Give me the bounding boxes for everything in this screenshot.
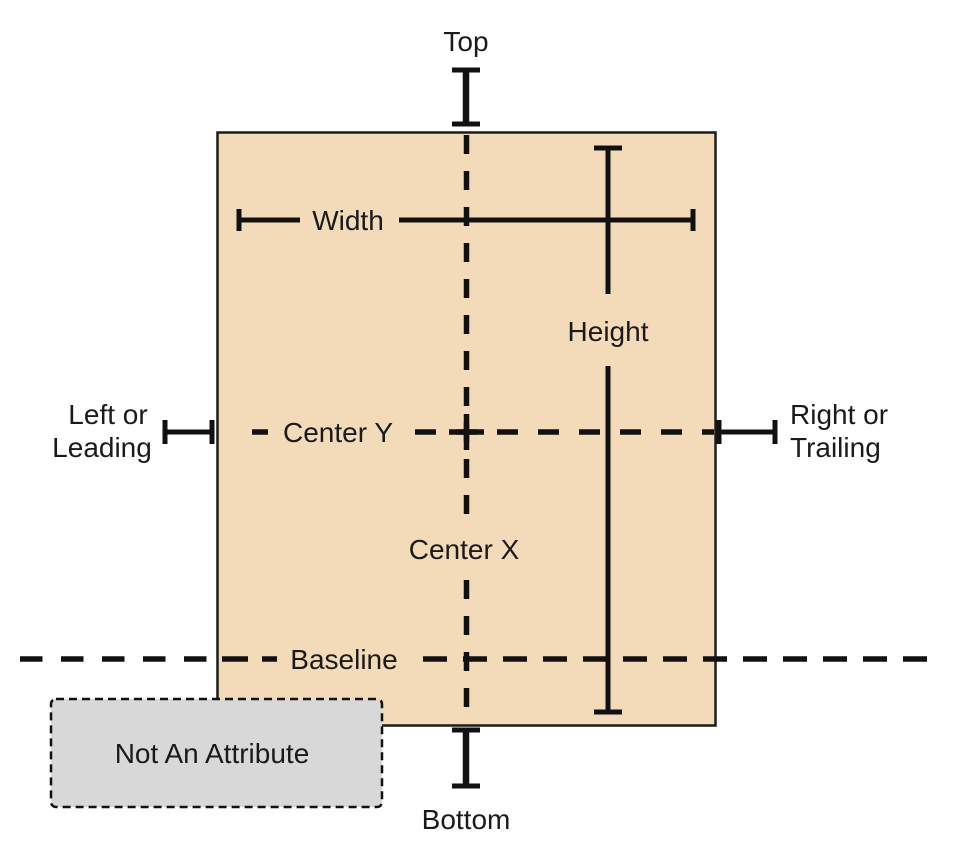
bottom-label: Bottom xyxy=(422,804,511,835)
left-leading-label-line1: Left or xyxy=(68,399,147,430)
not-an-attribute-label: Not An Attribute xyxy=(115,738,310,769)
width-label: Width xyxy=(312,205,384,236)
height-label: Height xyxy=(568,316,649,347)
trailing-connector xyxy=(719,420,775,444)
center-y-label: Center Y xyxy=(283,417,393,448)
right-trailing-label-line1: Right or xyxy=(790,399,888,430)
top-connector xyxy=(452,70,480,125)
layout-attributes-diagram: Top Center X Width Height Lef xyxy=(0,0,954,856)
right-trailing-label-line2: Trailing xyxy=(790,432,881,463)
top-label: Top xyxy=(443,26,488,57)
baseline-label: Baseline xyxy=(290,644,397,675)
leading-connector xyxy=(165,420,212,444)
left-leading-label-line2: Leading xyxy=(52,432,152,463)
center-x-label: Center X xyxy=(409,534,520,565)
bottom-connector xyxy=(452,730,480,786)
